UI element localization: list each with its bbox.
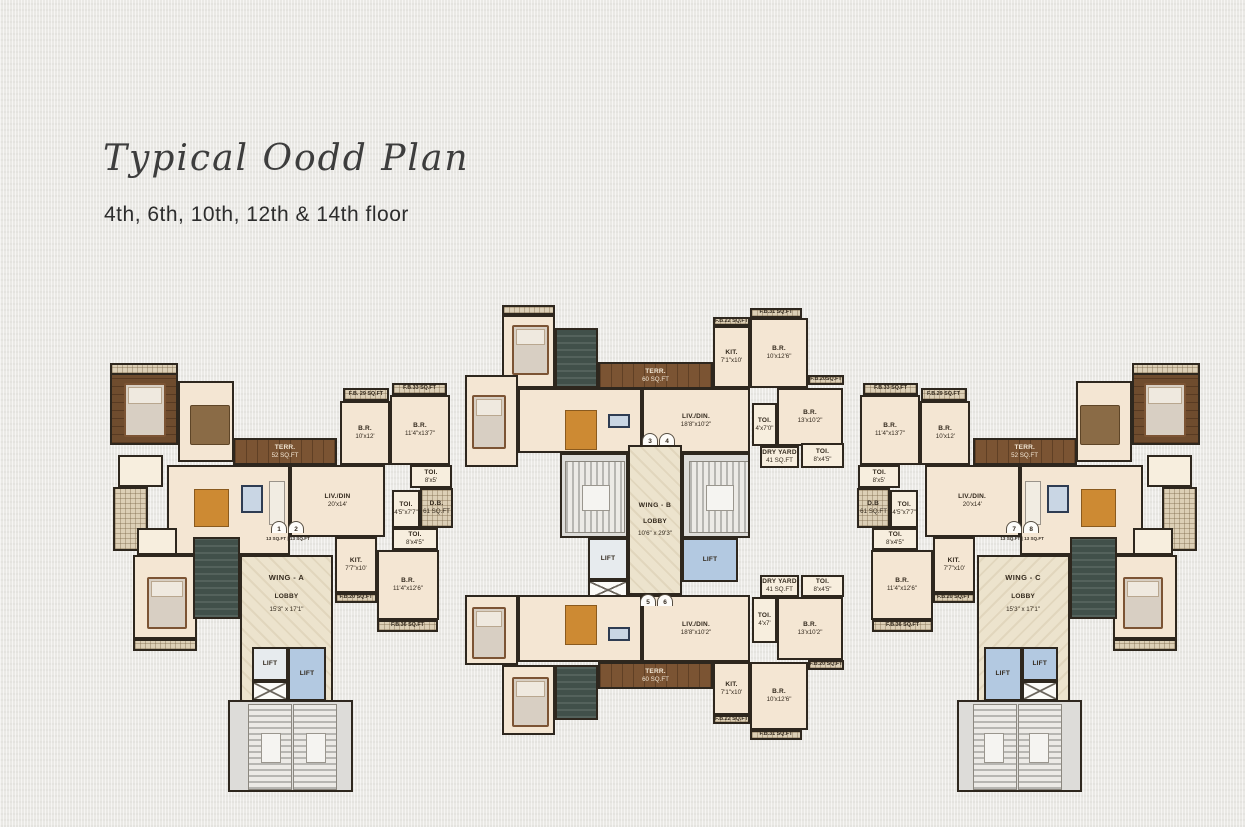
fb36-label: F.B.36 SQ.FT [886, 623, 919, 628]
lift-label: LIFT [300, 670, 315, 678]
livdin-dims: 20'x14' [963, 501, 982, 508]
flat-number: 8 [1029, 526, 1033, 533]
db-dims: 61 SQ.FT [860, 508, 887, 515]
wing-a-fb33-strip: F.B.33 SQ.FT [392, 383, 447, 395]
livdin-label: LIV./DIN. [959, 493, 987, 501]
flat-door-6: 6 [657, 594, 673, 606]
bedroom-label: B.R. [772, 688, 786, 696]
wing-b-bottom-fb22-strip: F.B.22 SQ.FT [713, 715, 750, 724]
toilet-label: TOI. [758, 417, 771, 425]
fb31-label: F.B.31 SQ.FT [760, 732, 793, 737]
terrace-label: TERR. [275, 444, 296, 452]
livdin-label: LIV./DIN. [682, 621, 710, 629]
wing-b-bottom-toilet-8x45: TOI. 8'x4'5" [801, 575, 844, 597]
toilet-label: TOI. [758, 612, 771, 620]
wing-c-terrace: TERR. 52 SQ.FT [973, 438, 1077, 465]
bedroom-label: B.R. [803, 621, 817, 629]
terrace-label: TERR. [1015, 444, 1036, 452]
wing-a-kitchen-dark [193, 537, 240, 619]
wing-a-fb20-strip: F.B.20 SQ.FT [335, 593, 377, 603]
entry-area-note: 13 SQ.FT | 13 SQ.FT [992, 536, 1052, 541]
livdin-dims: 20'x14' [328, 501, 347, 508]
bedroom-dims: 13'x10'2" [798, 629, 823, 636]
stair-flight [1018, 704, 1062, 790]
toilet-label: TOI. [408, 531, 421, 539]
wing-a-bedroom-bottom [133, 555, 197, 639]
dry-yard-dims: 41 SQ.FT [766, 457, 793, 464]
bedroom-label: B.R. [401, 577, 415, 585]
wing-c-fb36-strip: F.B.36 SQ.FT [872, 620, 933, 632]
db-dims: 61 SQ.FT [423, 508, 450, 515]
wing-a-bedroom-114x126: B.R. 11'4"x12'6" [377, 550, 439, 620]
fb31-label: F.B.31 SQ.FT [760, 310, 793, 315]
wing-c-toilet-8x5: TOI. 8'x5' [858, 465, 900, 488]
tv-unit [1047, 485, 1069, 513]
kitchen-label: KIT. [725, 349, 737, 357]
bedroom-dims: 11'4"x13'7" [875, 430, 905, 437]
toilet-dims: 8'x4'5" [886, 539, 904, 546]
wing-c-bedroom-bottom [1113, 555, 1177, 639]
wing-a-balcony-strip [133, 639, 197, 651]
kitchen-dims: 7'1"x10' [721, 357, 742, 364]
bedroom-dims: 10'x12'6" [767, 353, 792, 360]
wing-b-top-toilet-8x45: TOI. 8'x4'5" [801, 443, 844, 468]
wing-b-bottom-bedroom-2 [465, 595, 518, 665]
wing-a-kitchen: KIT. 7'7"x10' [335, 537, 377, 593]
flat-number: 5 [646, 599, 650, 606]
flat-door-3: 3 [642, 433, 658, 445]
toilet-label: TOI. [399, 501, 412, 509]
lift-label: LIFT [263, 660, 278, 668]
wing-c-lift-2: LIFT [984, 647, 1022, 701]
wing-b-lobby: WING - B LOBBY 10'6" x 29'3" [628, 445, 682, 595]
stair-flight [973, 704, 1017, 790]
stair-flight [689, 461, 749, 533]
wing-a-toilet-small [137, 528, 177, 555]
wing-b-bottom-kitchen-dark [555, 665, 598, 720]
bedroom-label: B.R. [938, 425, 952, 433]
toilet-dims: 4'x7' [758, 620, 770, 627]
lift-label: LIFT [703, 556, 718, 564]
wing-b-lift-right: LIFT [682, 538, 738, 582]
terrace-dims: 60 SQ.FT [642, 376, 669, 383]
wing-a-fb36-strip: F.B.36 SQ.FT [377, 620, 438, 632]
wing-c-plan: TERR. 52 SQ.FT LIV./DIN. 20'x14' F.B.29 … [848, 355, 1210, 795]
terrace-label: TERR. [645, 668, 666, 676]
toilet-label: TOI. [816, 578, 829, 586]
bedroom-dims: 10'x12'6" [767, 696, 792, 703]
flat-door-8: 8 [1023, 521, 1039, 533]
dry-yard-dims: 41 SQ.FT [766, 586, 793, 593]
lobby-label: LOBBY [275, 593, 299, 601]
wing-b-top-fb31-strip: F.B.31 SQ.FT [750, 308, 802, 318]
fb22-label: F.B.22 SQ.FT [715, 717, 748, 722]
wing-c-fb33-strip: F.B.33 SQ.FT [863, 383, 918, 395]
toilet-label: TOI. [816, 448, 829, 456]
fb33-label: F.B.33 SQ.FT [403, 386, 436, 391]
wing-c-kitchen: KIT. 7'7"x10' [933, 537, 975, 593]
fb20-label: F.B.20 SQ.FT [938, 595, 971, 600]
wing-c-bath [1147, 455, 1192, 487]
bedroom-dims: 13'x10'2" [798, 417, 823, 424]
page-title: Typical Oodd Plan [103, 138, 470, 179]
fb29-label: F.B.29 SQ.FT [928, 392, 961, 397]
bed [472, 607, 506, 659]
wing-b-top-kitchen-dark [555, 328, 598, 388]
wing-name: WING - B [639, 502, 672, 509]
wing-b-top-dry-yard: DRY YARD 41 SQ.FT [760, 446, 799, 468]
wing-c-bedroom-wood [1132, 373, 1200, 445]
wing-b-top-fb22-strip: F.B.22 SQ.FT [713, 317, 750, 326]
sofa-white [1025, 481, 1041, 525]
wing-c-bedroom-114x137: B.R. 11'4"x13'7" [860, 395, 920, 465]
lobby-label: LOBBY [1012, 593, 1036, 601]
wing-b-top-bedroom-2 [465, 375, 518, 467]
dining-table [194, 489, 229, 527]
wing-a-bedroom-114x137: B.R. 11'4"x13'7" [390, 395, 450, 465]
bedroom-label: B.R. [772, 345, 786, 353]
wing-c-lift-1: LIFT [1022, 647, 1058, 681]
wing-b-top-living-left [518, 388, 642, 453]
tv-unit [241, 485, 263, 513]
wing-a-toilet-8x45: TOI. 8'x4'5" [392, 528, 438, 550]
bedroom-label: B.R. [883, 422, 897, 430]
toilet-dims: 8'x4'5" [406, 539, 424, 546]
livdin-dims: 18'8"x10'2" [681, 421, 712, 428]
fb36-label: F.B.36 SQ.FT [391, 623, 424, 628]
toilet-dims: 8'x4'5" [814, 586, 832, 593]
wing-a-lift-1: LIFT [252, 647, 288, 681]
livdin-label: LIV./DIN. [682, 413, 710, 421]
wing-c-fb29-strip: F.B.29 SQ.FT [921, 388, 967, 401]
bed [472, 395, 506, 449]
wing-b-staircase-left [560, 453, 628, 538]
lobby-label: LOBBY [643, 518, 667, 526]
flat-door-1: 1 [271, 521, 287, 533]
wing-a-sitting-room [178, 381, 234, 462]
flat-door-2: 2 [288, 521, 304, 533]
bedroom-label: B.R. [358, 425, 372, 433]
bed [512, 325, 549, 375]
wing-c-toilet-8x45: TOI. 8'x4'5" [872, 528, 918, 550]
dry-yard-label: DRY YARD [762, 449, 796, 457]
wing-b-top-bedroom-13x102: B.R. 13'x10'2" [777, 388, 843, 446]
bed [512, 677, 549, 727]
wing-c-balcony-strip [1113, 639, 1177, 651]
flat-door-7: 7 [1006, 521, 1022, 533]
wing-c-kitchen-dark [1070, 537, 1117, 619]
bedroom-dims: 10'x12' [935, 433, 954, 440]
wing-c-bedroom-114x126: B.R. 11'4"x12'6" [871, 550, 933, 620]
bed [147, 577, 187, 629]
wing-b-top-fb-strip [502, 305, 555, 315]
wing-c-staircase [957, 700, 1082, 792]
wing-a-lift-machine [252, 681, 288, 701]
terrace-label: TERR. [645, 368, 666, 376]
wing-c-fb20-strip: F.B.20 SQ.FT [933, 593, 975, 603]
bedroom-label: B.R. [895, 577, 909, 585]
wing-b-plan: TERR. 60 SQ.FT LIV./DIN. 18'8"x10'2" F.B… [465, 300, 850, 740]
wing-a-bath [118, 455, 163, 487]
sofa [1080, 405, 1120, 445]
fb33-label: F.B.33 SQ.FT [874, 386, 907, 391]
livdin-dims: 18'8"x10'2" [681, 629, 712, 636]
wing-b-bottom-fb20-strip: F.B.20 SQ.FT [808, 660, 844, 670]
toilet-label: TOI. [897, 501, 910, 509]
wing-a-terrace: TERR. 52 SQ.FT [233, 438, 337, 465]
wing-b-bottom-bedroom-1 [502, 665, 555, 735]
toilet-label: TOI. [424, 469, 437, 477]
wing-a-bedroom-wood [110, 373, 178, 445]
floor-plan-page: Typical Oodd Plan 4th, 6th, 10th, 12th &… [0, 0, 1245, 827]
fb20-label: F.B.20 SQ.FT [340, 595, 373, 600]
flat-number: 6 [663, 599, 667, 606]
wing-a-staircase [228, 700, 353, 792]
wing-b-bottom-dry-yard: DRY YARD 41 SQ.FT [760, 575, 799, 597]
kitchen-dims: 7'7"x10' [345, 565, 366, 572]
terrace-dims: 52 SQ.FT [1012, 452, 1039, 459]
wing-c-toilet-small [1133, 528, 1173, 555]
wing-b-bottom-fb31-strip: F.B.31 SQ.FT [750, 730, 802, 740]
db-label: D.B. [430, 500, 444, 508]
entry-area-note: 13 SQ.FT | 13 SQ.FT [258, 536, 318, 541]
kitchen-label: KIT. [350, 557, 362, 565]
fb20-label: F.B.20 SQ.FT [810, 662, 843, 667]
fb20-label: F.B.20SQ.FT [810, 377, 841, 382]
bed [124, 383, 166, 437]
bedroom-dims: 11'4"x12'6" [393, 585, 423, 592]
dining-table [565, 410, 597, 450]
wing-b-bottom-bedroom-10x126: B.R. 10'x12'6" [750, 662, 808, 730]
flat-number: 3 [648, 438, 652, 445]
kitchen-dims: 7'7"x10' [943, 565, 964, 572]
bed [1144, 383, 1186, 437]
wing-b-staircase-right [682, 453, 750, 538]
fb22-label: F.B.22 SQ.FT [715, 319, 748, 324]
bedroom-dims: 11'4"x13'7" [405, 430, 435, 437]
toilet-label: TOI. [888, 531, 901, 539]
wing-c-toilet-45x77: TOI. 4'5"x7'7" [890, 490, 918, 528]
bedroom-label: B.R. [803, 409, 817, 417]
wing-c-bedroom-10x12: B.R. 10'x12' [920, 401, 970, 465]
dry-yard-label: DRY YARD [762, 578, 796, 586]
stair-flight [248, 704, 292, 790]
terrace-dims: 60 SQ.FT [642, 676, 669, 683]
wing-b-top-bedroom-10x126: B.R. 10'x12'6" [750, 318, 808, 388]
flat-number: 4 [665, 438, 669, 445]
wing-c-sitting-room [1076, 381, 1132, 462]
kitchen-label: KIT. [948, 557, 960, 565]
wing-b-top-fb20-strip: F.B.20SQ.FT [808, 375, 844, 385]
kitchen-label: KIT. [725, 681, 737, 689]
toilet-dims: 8'x5' [425, 477, 437, 484]
lift-label: LIFT [1033, 660, 1048, 668]
wing-a-living-dining: LIV./DIN 20'x14' [290, 465, 385, 537]
wing-b-lift-left: LIFT [588, 538, 628, 580]
sofa [190, 405, 230, 445]
wing-name: WING - A [269, 573, 304, 582]
wing-a-plan: TERR. 52 SQ.FT LIV./DIN 20'x14' F.B. 29 … [100, 355, 462, 795]
sofa-white [269, 481, 285, 525]
flat-door-5: 5 [640, 594, 656, 606]
wing-b-bottom-kitchen: KIT. 7'1"x10' [713, 662, 750, 715]
livdin-label: LIV./DIN [325, 493, 351, 501]
stair-flight [293, 704, 337, 790]
toilet-dims: 4'x7'0" [756, 425, 774, 432]
wing-a-toilet-45x77: TOI. 4'5"x7'7" [392, 490, 420, 528]
flat-number: 7 [1012, 526, 1016, 533]
bedroom-label: B.R. [413, 422, 427, 430]
wing-b-bottom-terrace: TERR. 60 SQ.FT [598, 662, 713, 689]
stair-flight [565, 461, 625, 533]
wing-b-top-toilet-4x70: TOI. 4'x7'0" [752, 403, 777, 446]
toilet-dims: 8'x5' [873, 477, 885, 484]
tv-unit [608, 414, 630, 428]
toilet-dims: 4'5"x7'7" [892, 509, 916, 516]
wing-a-toilet-8x5: TOI. 8'x5' [410, 465, 452, 488]
wing-name: WING - C [1006, 573, 1042, 582]
wing-b-bottom-toilet-4x7: TOI. 4'x7' [752, 597, 777, 643]
wing-a-duct-db: D.B. 61 SQ.FT [420, 488, 453, 528]
fb29-label: F.B. 29 SQ.FT [349, 392, 383, 397]
lobby-dims: 10'6" x 29'3" [638, 530, 672, 537]
lobby-dims: 15'3" x 17'1" [270, 606, 304, 613]
kitchen-dims: 7'1"x10' [721, 689, 742, 696]
lift-label: LIFT [601, 555, 616, 563]
wing-c-lift-machine [1022, 681, 1058, 701]
wing-a-lift-2: LIFT [288, 647, 326, 701]
dining-table [565, 605, 597, 645]
wing-a-fb29-strip: F.B. 29 SQ.FT [343, 388, 389, 401]
flat-number: 2 [294, 526, 298, 533]
wing-b-bottom-living-left [518, 595, 642, 662]
bedroom-dims: 11'4"x12'6" [887, 585, 917, 592]
lift-label: LIFT [996, 670, 1011, 678]
lobby-dims: 15'3" x 17'1" [1007, 606, 1041, 613]
dining-table [1081, 489, 1116, 527]
wing-a-bedroom-10x12: B.R. 10'x12' [340, 401, 390, 465]
wing-c-duct-db: D.B 61 SQ.FT [857, 488, 890, 528]
db-label: D.B [868, 500, 880, 508]
tv-unit [608, 627, 630, 641]
flat-number: 1 [277, 526, 281, 533]
terrace-dims: 52 SQ.FT [272, 452, 299, 459]
wing-b-bottom-bedroom-13x102: B.R. 13'x10'2" [777, 597, 843, 660]
entry-area-text: 13 SQ.FT | 13 SQ.FT [1000, 536, 1044, 541]
flat-door-4: 4 [659, 433, 675, 445]
bed [1123, 577, 1163, 629]
toilet-label: TOI. [872, 469, 885, 477]
wing-b-top-terrace: TERR. 60 SQ.FT [598, 362, 713, 389]
toilet-dims: 4'5"x7'7" [394, 509, 418, 516]
bedroom-dims: 10'x12' [355, 433, 374, 440]
toilet-dims: 8'x4'5" [814, 456, 832, 463]
entry-area-text: 13 SQ.FT | 13 SQ.FT [266, 536, 310, 541]
wing-b-top-kitchen: KIT. 7'1"x10' [713, 326, 750, 388]
page-subtitle: 4th, 6th, 10th, 12th & 14th floor [104, 203, 409, 227]
